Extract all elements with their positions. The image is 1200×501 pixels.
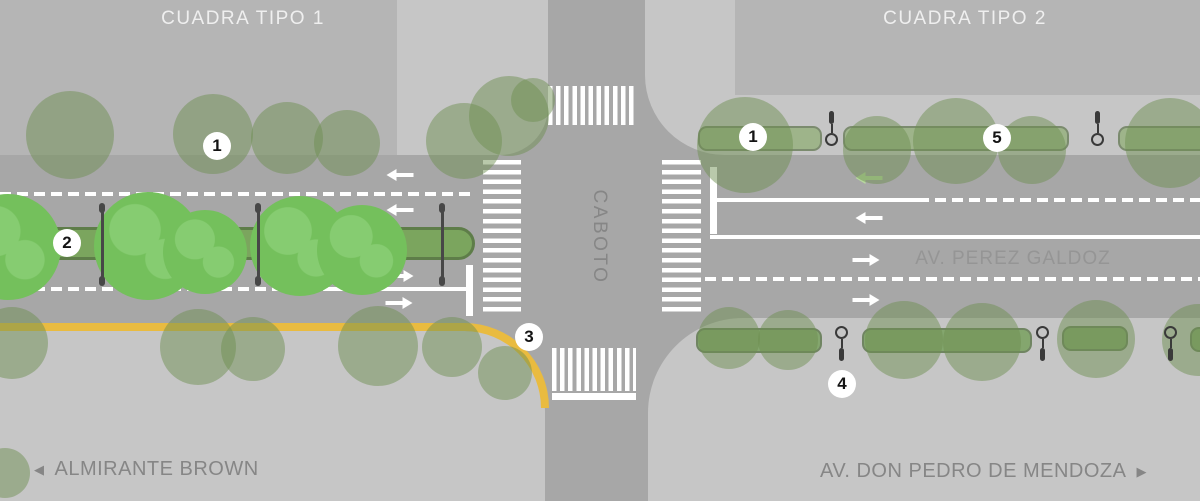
street-light-icon <box>1164 326 1177 361</box>
tree-icon <box>26 91 114 179</box>
tree-stake-marking <box>441 208 444 281</box>
street-light-icon <box>825 111 838 146</box>
tree-stake-marking <box>101 208 104 281</box>
lane-line-marking <box>705 277 1200 281</box>
lane-arrow-icon <box>387 204 414 216</box>
tree-icon <box>843 116 911 184</box>
crosswalk-marking <box>662 160 701 316</box>
bottom-left-street: ◀ ALMIRANTE BROWN <box>34 458 259 481</box>
street-light-icon <box>835 326 848 361</box>
crosswalk-marking <box>552 348 636 391</box>
block-type-2-title: CUADRA TIPO 2 <box>883 8 1047 30</box>
number-badge: 4 <box>828 370 856 398</box>
block-type-1-title: CUADRA TIPO 1 <box>161 8 325 30</box>
east-direction-icon: ▶ <box>1137 464 1148 480</box>
tree-icon <box>221 317 285 381</box>
street-light-icon <box>1091 111 1104 146</box>
number-badge: 5 <box>983 124 1011 152</box>
tree-stake-marking <box>257 208 260 281</box>
avenue-label: AV. PEREZ GALDOZ <box>915 248 1111 270</box>
lane-line-marking <box>918 198 1200 202</box>
street-plan-diagram: 123154 CUADRA TIPO 1 CUADRA TIPO 2 CABOT… <box>0 0 1200 501</box>
tree-icon <box>865 301 943 379</box>
lane-line-marking <box>710 235 1200 239</box>
tree-icon <box>478 346 532 400</box>
tree-icon <box>338 306 418 386</box>
lane-arrow-icon <box>387 169 414 181</box>
lane-line-marking <box>0 192 471 196</box>
tree-icon <box>314 110 380 176</box>
tree-icon <box>1125 98 1200 188</box>
median-tree-icon <box>317 205 407 295</box>
tree-icon <box>943 303 1021 381</box>
number-badge: 2 <box>53 229 81 257</box>
tree-icon <box>698 307 760 369</box>
cross-street-label: CABOTO <box>588 190 610 285</box>
median-tree-icon <box>0 194 61 300</box>
stop-bar-marking <box>466 265 473 316</box>
lane-arrow-icon <box>853 254 880 266</box>
crosswalk-marking <box>548 86 637 125</box>
tree-icon <box>511 78 555 122</box>
tree-icon <box>251 102 323 174</box>
west-direction-icon: ◀ <box>34 462 45 478</box>
tree-icon <box>998 116 1066 184</box>
street-light-icon <box>1036 326 1049 361</box>
tree-icon <box>758 310 818 370</box>
number-badge: 1 <box>739 123 767 151</box>
lane-arrow-icon <box>856 212 883 224</box>
lane-line-marking <box>716 198 918 202</box>
number-badge: 3 <box>515 323 543 351</box>
bottom-right-street: AV. DON PEDRO DE MENDOZA ▶ <box>820 460 1147 483</box>
stop-bar-marking <box>552 393 636 400</box>
median-tree-icon <box>163 210 247 294</box>
bottom-left-street-name: ALMIRANTE BROWN <box>55 458 259 481</box>
number-badge: 1 <box>203 132 231 160</box>
bottom-right-street-name: AV. DON PEDRO DE MENDOZA <box>820 460 1127 483</box>
tree-icon <box>1057 300 1135 378</box>
lane-arrow-icon <box>853 294 880 306</box>
crosswalk-marking <box>483 160 521 316</box>
tree-icon <box>422 317 482 377</box>
